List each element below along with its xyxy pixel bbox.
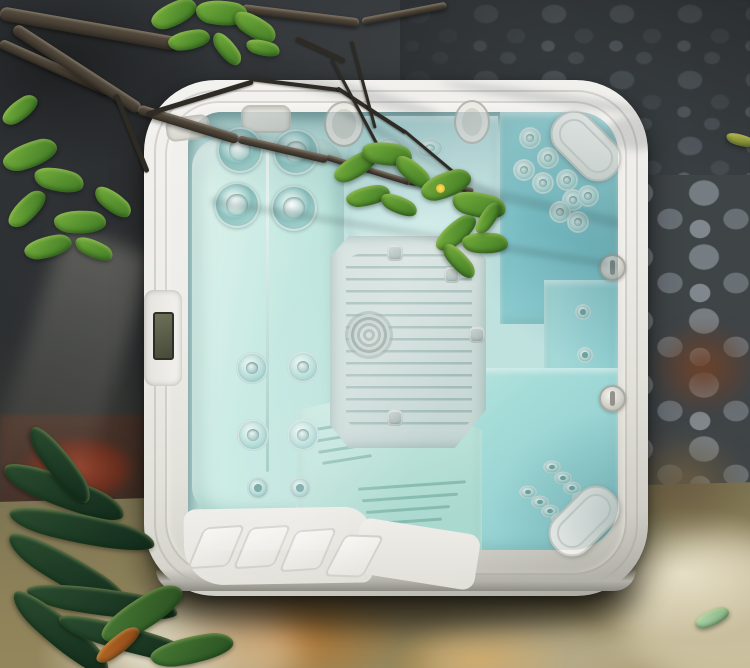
corner-cluster-jet	[519, 127, 541, 149]
outdoor-scene	[0, 0, 750, 668]
lounger-back-jet	[287, 419, 319, 451]
suction-fitting	[387, 410, 403, 426]
yellow-flower	[436, 184, 445, 193]
seat-groove	[362, 493, 458, 503]
right-seat-jet	[575, 304, 591, 320]
suction-fitting	[387, 245, 403, 261]
lounger-back-jet	[236, 352, 268, 384]
corner-cluster-jet	[537, 147, 559, 169]
corner-cluster-jet	[532, 172, 554, 194]
seat-groove	[322, 454, 372, 465]
control-panel-screen	[153, 312, 174, 360]
floor-drain	[348, 314, 390, 356]
air-control-knob	[599, 385, 626, 412]
lounger-back-jet	[237, 419, 269, 451]
corner-cluster-jet	[513, 159, 535, 181]
leaf-shadow	[606, 116, 666, 150]
lounger-back-jet	[287, 351, 319, 383]
suction-fitting	[469, 327, 485, 343]
lounger-foot-jet	[247, 477, 269, 499]
rust-stain	[648, 320, 750, 415]
lounger-foot-jet	[289, 477, 311, 499]
corner-cluster-jet	[556, 169, 578, 191]
corner-cluster-jet	[577, 185, 599, 207]
right-seat-jet	[577, 347, 593, 363]
seat-groove	[366, 505, 450, 514]
lounger-seam	[266, 152, 269, 472]
seat-groove	[358, 480, 466, 491]
rim-oval-port	[454, 100, 490, 144]
